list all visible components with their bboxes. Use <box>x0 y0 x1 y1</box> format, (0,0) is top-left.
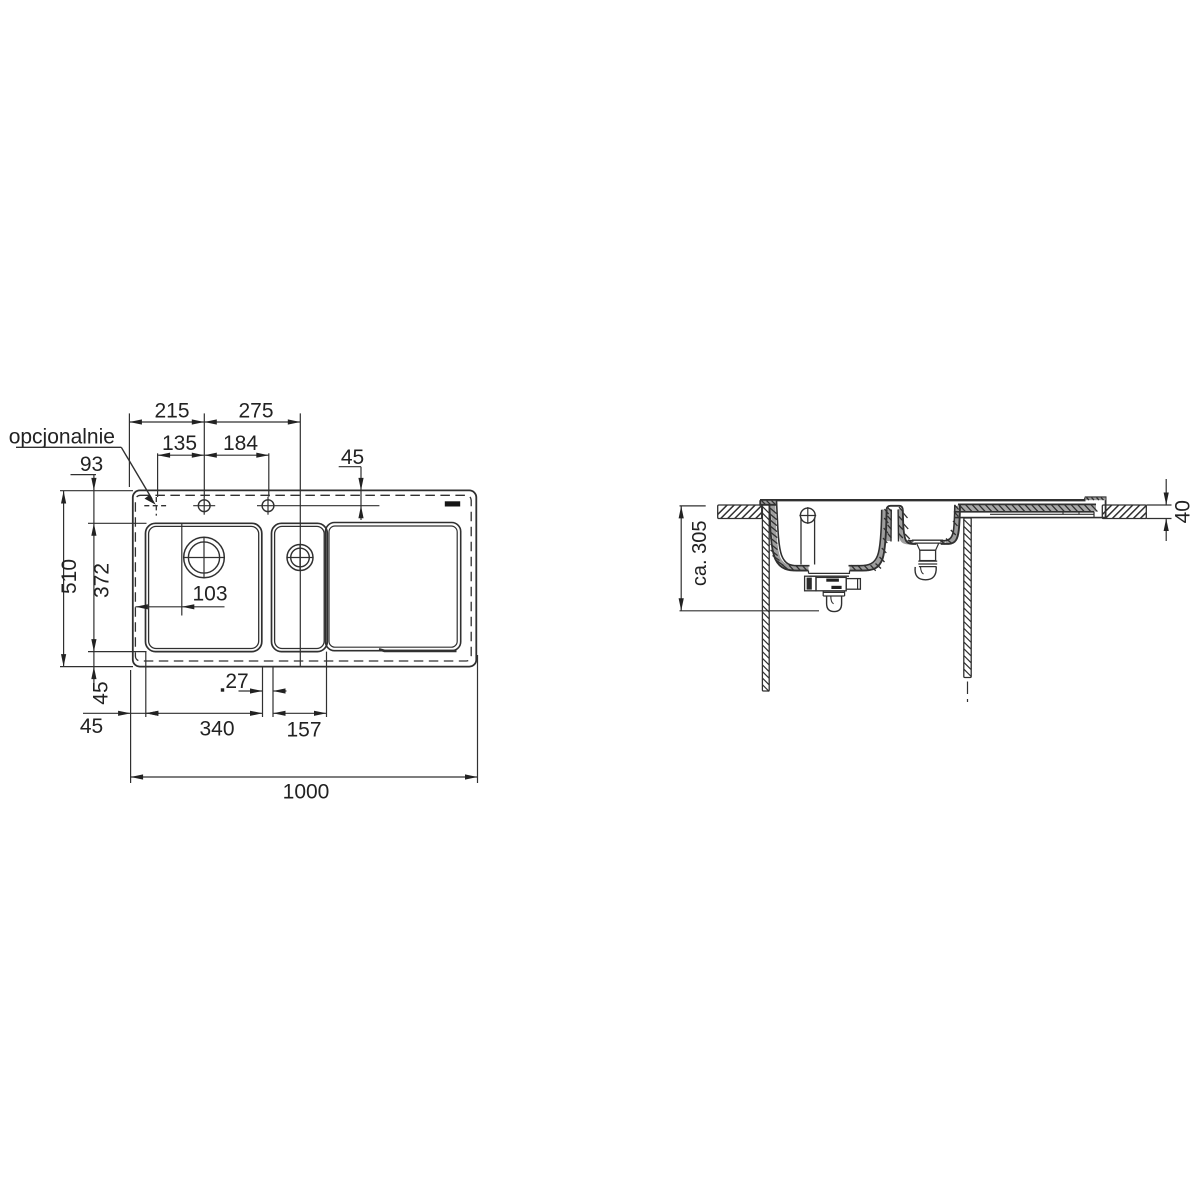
svg-text:184: 184 <box>223 432 258 455</box>
svg-text:40: 40 <box>1172 500 1195 523</box>
svg-text:135: 135 <box>162 432 197 455</box>
svg-text:opcjonalnie: opcjonalnie <box>9 426 115 449</box>
svg-text:157: 157 <box>286 719 321 742</box>
svg-text:ca. 305: ca. 305 <box>689 520 711 586</box>
svg-text:510: 510 <box>58 559 81 594</box>
svg-text:1000: 1000 <box>283 781 330 804</box>
svg-text:45: 45 <box>90 681 113 704</box>
svg-text:215: 215 <box>154 400 189 423</box>
svg-text:45: 45 <box>80 715 103 738</box>
svg-text:27: 27 <box>225 670 248 693</box>
svg-text:45: 45 <box>341 446 364 469</box>
svg-text:93: 93 <box>80 453 103 476</box>
svg-text:103: 103 <box>192 583 227 606</box>
svg-text:340: 340 <box>199 718 234 741</box>
svg-text:275: 275 <box>238 400 273 423</box>
svg-text:372: 372 <box>91 563 114 598</box>
